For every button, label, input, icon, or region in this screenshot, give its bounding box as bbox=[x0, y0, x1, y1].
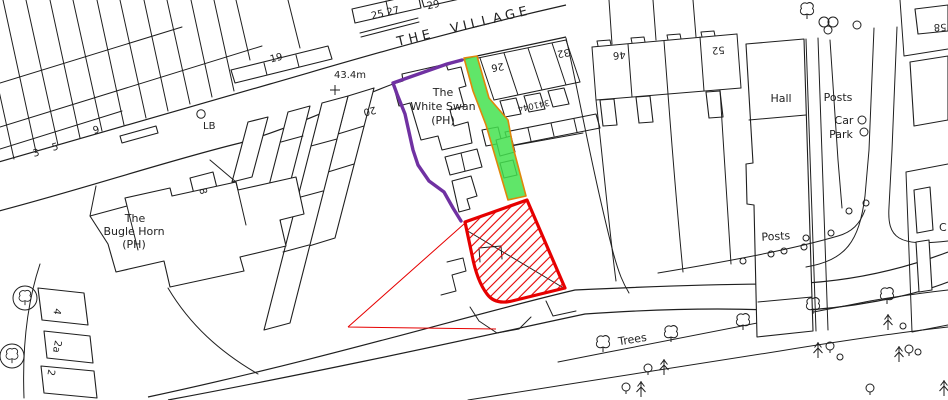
house-number-5: 5 bbox=[51, 141, 60, 153]
bugle-horn-line3: (PH) bbox=[122, 238, 146, 251]
posts-upper-label: Posts bbox=[824, 91, 853, 104]
car-park-posts-icons bbox=[858, 116, 868, 136]
partial-building-label: C bbox=[939, 221, 947, 234]
white-swan-line3: (PH) bbox=[431, 114, 455, 127]
bus-shelter bbox=[120, 126, 158, 143]
site-plan-map: THE VILLAGE 43.4m The White Swan (PH) Th… bbox=[0, 0, 948, 400]
house-number-32: 32 bbox=[556, 46, 570, 59]
top-right-tree-icons bbox=[800, 3, 861, 34]
bugle-horn-line1: The bbox=[124, 212, 146, 225]
red-site-boundary-overlay bbox=[465, 200, 565, 302]
spot-height-label: 43.4m bbox=[334, 70, 366, 81]
right-edge-buildings bbox=[900, 0, 948, 332]
house-number-29: 29 bbox=[426, 0, 441, 12]
posts-lower-label: Posts bbox=[761, 229, 791, 244]
street-name-label: THE VILLAGE bbox=[394, 3, 532, 50]
house-number-3: 3 bbox=[32, 147, 41, 159]
white-swan-line2: White Swan bbox=[410, 100, 475, 113]
letter-box-label: LB bbox=[203, 121, 216, 132]
house-number-2a: 2a bbox=[50, 339, 63, 353]
house-number-46: 46 bbox=[612, 48, 626, 60]
house-number-26: 26 bbox=[490, 60, 504, 73]
map-canvas: THE VILLAGE 43.4m The White Swan (PH) Th… bbox=[0, 0, 948, 400]
circled-tree-icons bbox=[0, 286, 37, 368]
green-strip-overlay bbox=[464, 56, 526, 200]
north-terraces bbox=[0, 0, 464, 159]
southwest-gardens bbox=[24, 264, 258, 398]
hall-building bbox=[746, 38, 828, 337]
house-number-52: 52 bbox=[711, 43, 725, 55]
bugle-horn-line2: Bugle Horn bbox=[103, 225, 164, 238]
white-swan-line1: The bbox=[432, 86, 454, 99]
house-number-58: 58 bbox=[934, 21, 947, 32]
park-label: Park bbox=[829, 128, 853, 141]
terrace-46-52 bbox=[592, 0, 741, 126]
hall-label: Hall bbox=[770, 92, 791, 105]
bench-mark-icon bbox=[330, 85, 340, 95]
house-number-9: 9 bbox=[92, 124, 101, 136]
car-label: Car bbox=[835, 114, 854, 127]
letter-box-icon bbox=[197, 110, 205, 118]
